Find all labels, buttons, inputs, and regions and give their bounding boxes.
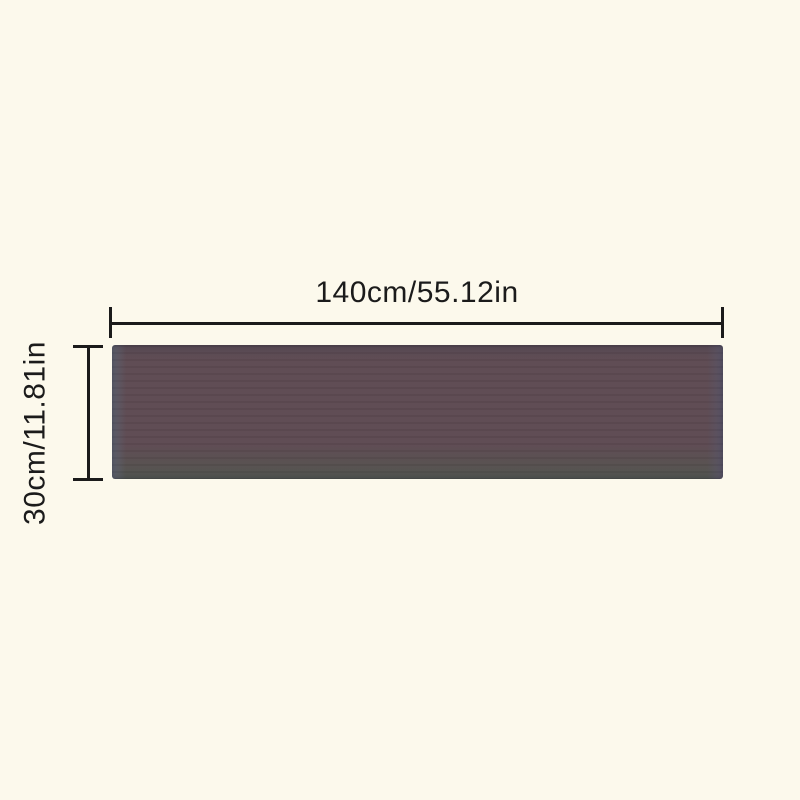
dimension-diagram: 140cm/55.12in 30cm/11.81in: [0, 0, 800, 800]
width-dimension-label: 140cm/55.12in: [315, 276, 518, 309]
height-dimension-cap-top: [73, 345, 103, 348]
height-dimension-label: 30cm/11.81in: [19, 341, 52, 525]
width-dimension-line: [110, 322, 723, 325]
height-dimension-line: [87, 346, 90, 480]
width-dimension-cap-right: [721, 307, 724, 338]
height-dimension-cap-bottom: [73, 478, 103, 481]
width-dimension-cap-left: [109, 307, 112, 338]
product-swatch: [112, 345, 723, 479]
